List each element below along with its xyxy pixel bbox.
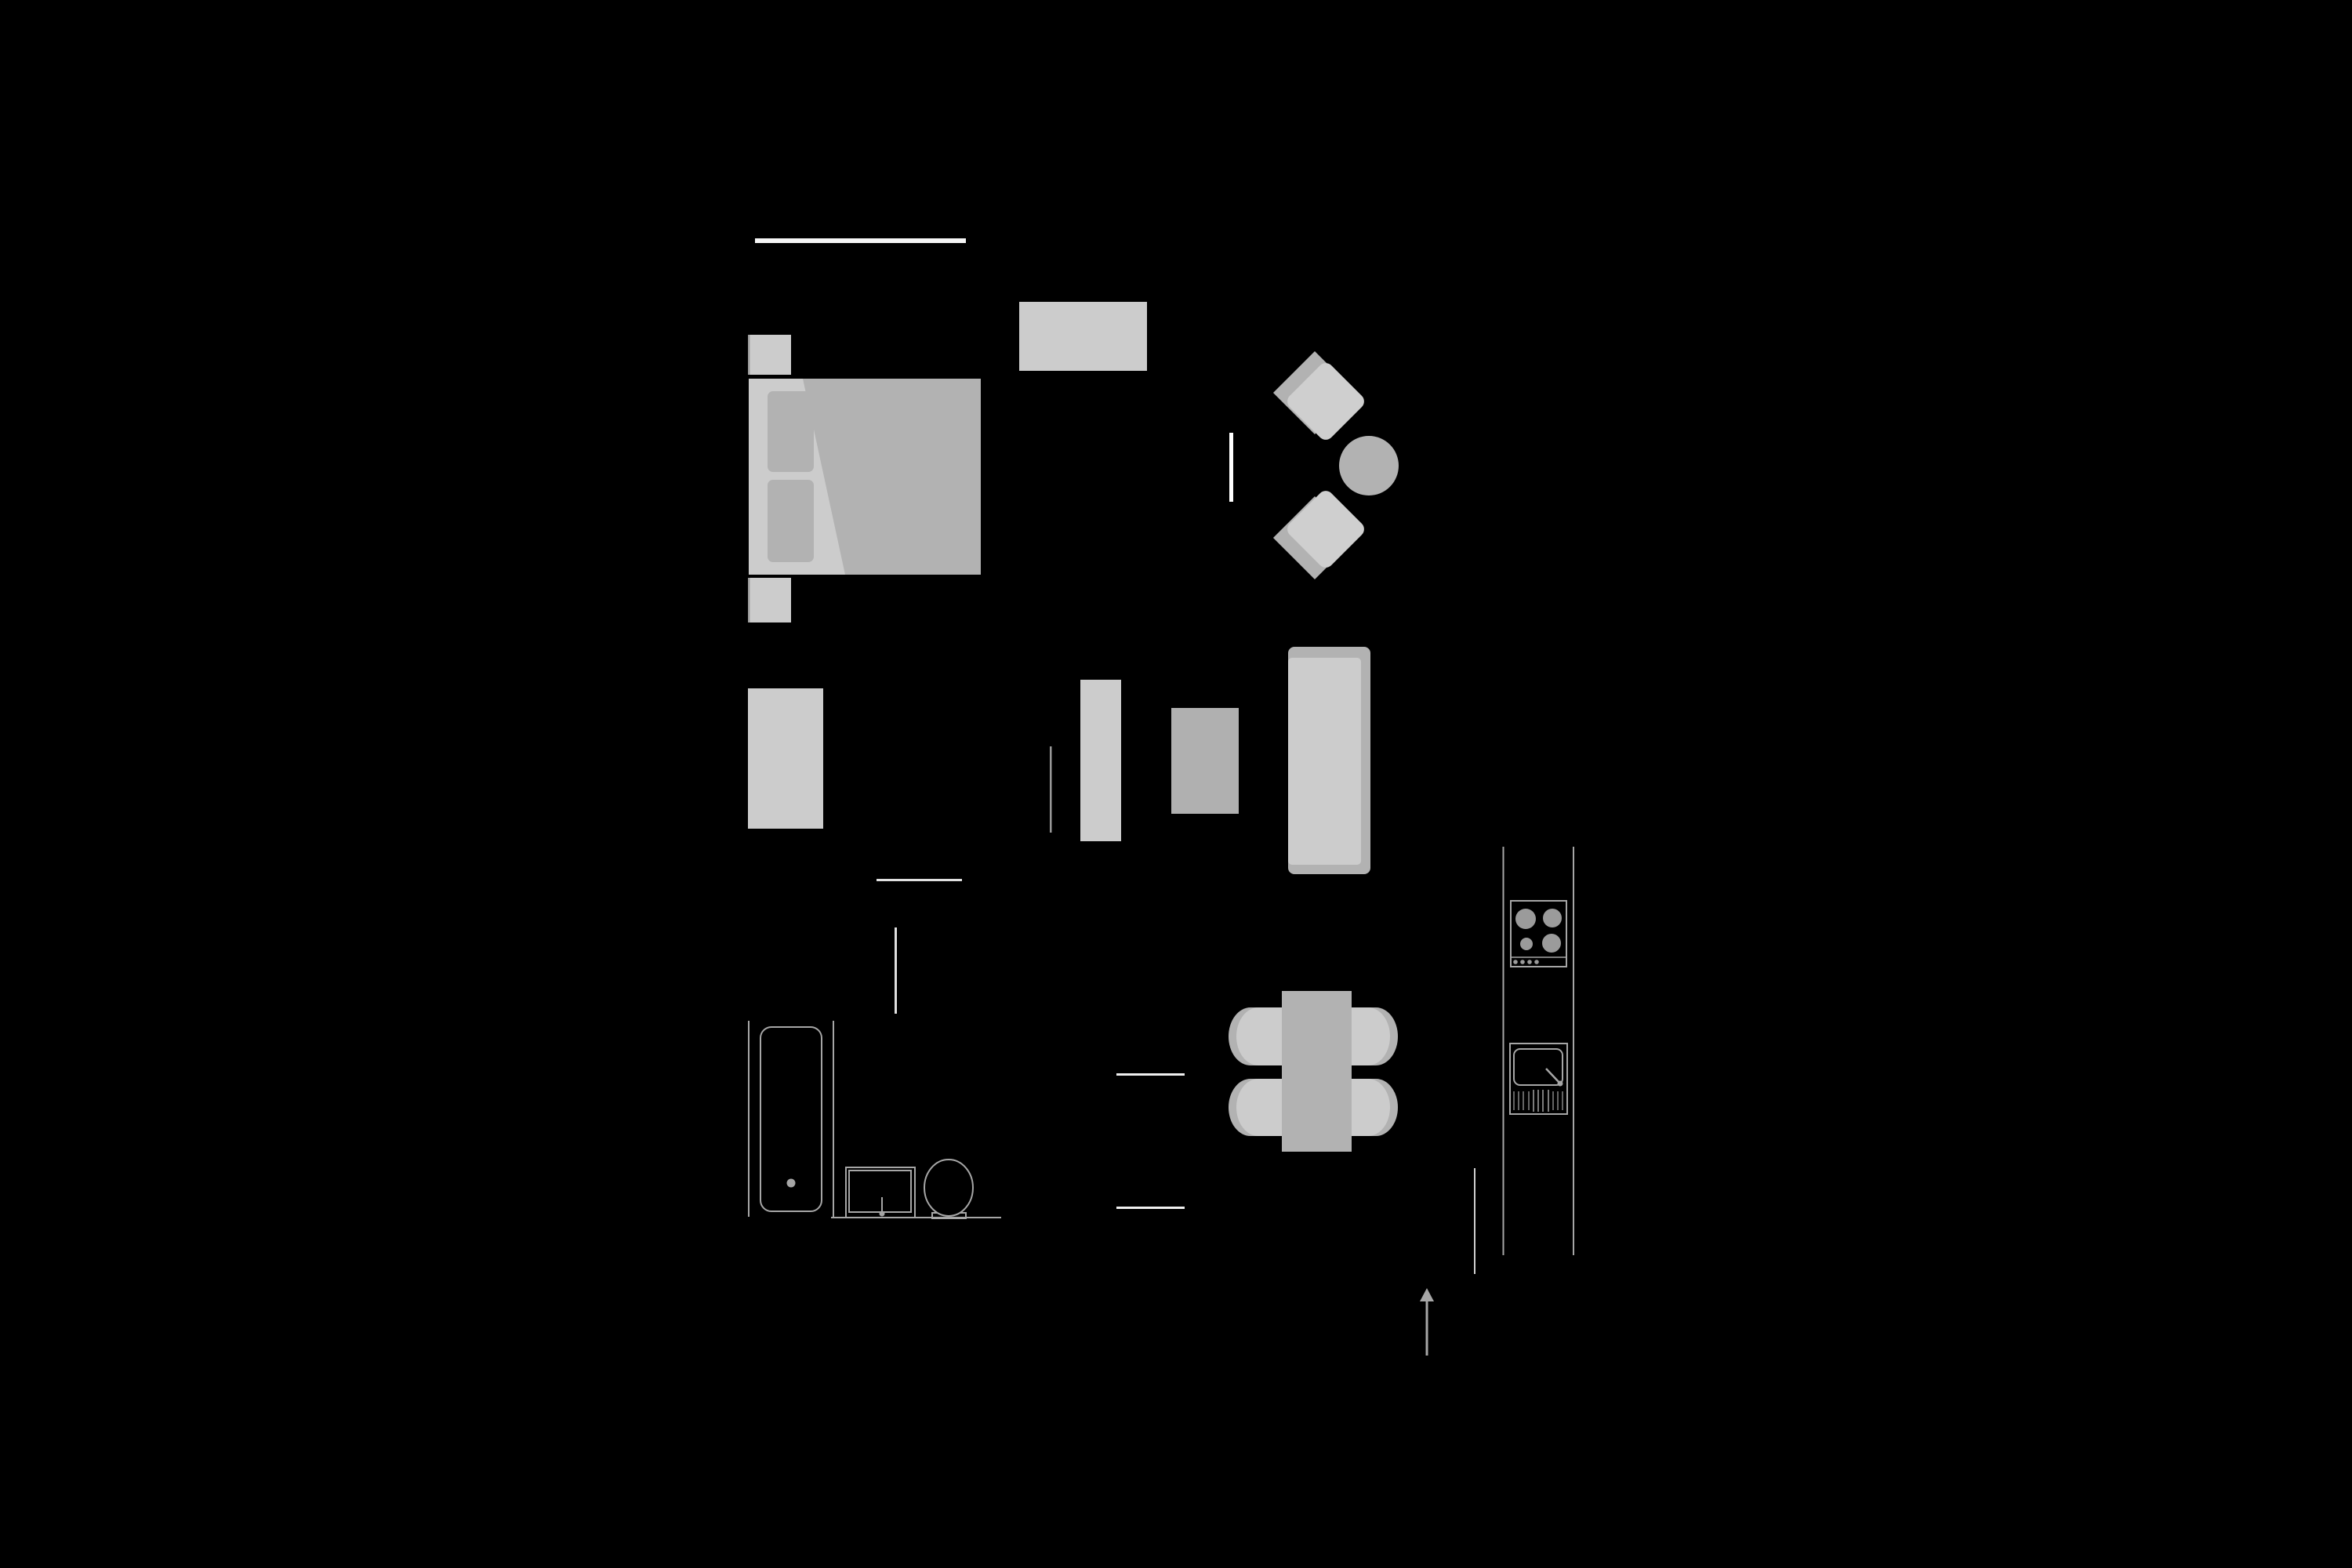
dining-chair-bottom-left-seat [1236,1079,1285,1136]
bed-pillow-bottom [768,480,814,562]
hall-opening-line-horizontal [877,879,962,881]
wardrobe [748,688,823,829]
dining-door-line-top [1116,1073,1185,1076]
stove-knob-3 [1527,960,1532,964]
bathroom-sink-outer [846,1167,915,1218]
sofa [1288,647,1370,874]
side-table [1339,436,1399,495]
dining-table [1282,991,1352,1152]
dining-chair-top-right [1345,1007,1398,1065]
armchair-bottom [1273,488,1367,579]
bathroom-sink-basin [849,1171,911,1212]
kitchen-wall-line-left [1503,847,1504,1255]
bed-pillow-top [768,391,814,472]
bedroom-window-line [755,238,966,243]
coffee-table [1171,708,1239,814]
nightstand-top-body [748,335,791,375]
bathroom-wall-line-mid [833,1021,834,1217]
armchair-top [1273,351,1367,443]
entrance-arrow-head [1420,1288,1434,1301]
sink-faucet-dot [1558,1081,1563,1087]
stove-knob-2 [1520,960,1525,964]
dining-chair-bottom-left [1229,1079,1285,1136]
double-bed [749,379,981,575]
burner-top-left [1515,909,1536,929]
kitchen-wall-line-right [1573,847,1574,1255]
nightstand-bottom [748,578,791,622]
hall-opening-line-vertical [895,927,897,1014]
dining-door-line-bottom [1116,1207,1185,1209]
nightstand-top-edge [748,335,750,375]
dresser [1019,302,1147,371]
bathroom-wall-line-left [748,1021,750,1217]
toilet-bowl [924,1160,973,1216]
nightstand-bottom-body [748,578,791,622]
bathtub-drain [787,1179,796,1188]
kitchen-outer-wall-segment [1474,1168,1475,1274]
burner-top-right [1543,909,1562,927]
nightstand-bottom-edge [748,578,750,622]
bathroom-sink-faucet-dot [880,1211,885,1217]
dining-chair-top-left-seat [1236,1007,1285,1065]
sitting-window-line [1229,433,1233,502]
dining-chair-top-left [1229,1007,1285,1065]
interior-door-line [1050,746,1052,833]
dining-chair-bottom-right [1345,1079,1398,1136]
kitchen-sink [1510,1044,1567,1114]
sofa-seat [1288,658,1361,865]
floor-plan [0,0,2352,1568]
stove [1511,901,1566,967]
entrance-arrow-icon [1420,1288,1434,1356]
bathroom-floor-line [831,1217,1001,1218]
tv-stand [1080,680,1121,841]
bathroom [748,1021,1001,1218]
burner-bottom-right [1542,934,1561,953]
nightstand-top [748,335,791,375]
stove-knob-4 [1534,960,1539,964]
stove-knob-1 [1513,960,1518,964]
sink-faucet-line [1546,1069,1560,1083]
burner-bottom-left [1520,938,1533,950]
dining-set [1229,991,1398,1152]
kitchen [1474,847,1574,1274]
